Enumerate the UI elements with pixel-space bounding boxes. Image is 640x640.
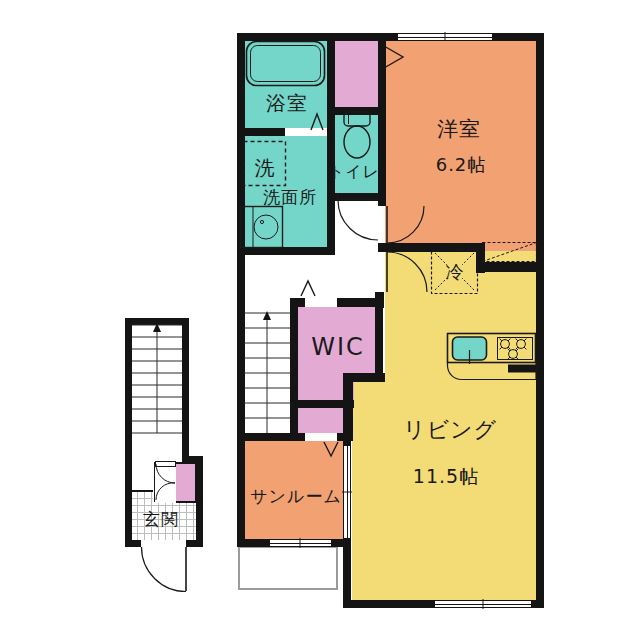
wall (125, 318, 132, 547)
room-closet-top (334, 40, 379, 108)
balcony (238, 546, 338, 590)
wall (125, 318, 189, 325)
wall (237, 539, 269, 547)
refrigerator-label: 冷 (446, 260, 465, 284)
wall (343, 600, 434, 608)
wic-label: WIC (311, 333, 365, 361)
room-closet-low (297, 407, 346, 434)
laundry-label: 洗 (255, 155, 276, 182)
living-size: 11.5帖 (413, 464, 479, 490)
wall (244, 247, 335, 255)
wall (290, 400, 354, 408)
western-room-label: 洋室 (437, 115, 481, 143)
wall (237, 33, 245, 546)
living-label: リビング (403, 415, 497, 445)
sunroom-window (269, 539, 332, 547)
entry-door-opening (141, 541, 186, 547)
floor-plan: 浴室 洗 洗面所 トイレ 洋室 6.2帖 冷 WIC リビング 11.5帖 サン… (0, 0, 640, 640)
entrance-label: 玄関 (143, 508, 179, 531)
stairs-internal (244, 311, 290, 433)
sunroom-door-opening (305, 433, 337, 441)
room-bathroom (244, 40, 328, 130)
wall (334, 107, 379, 115)
wall (244, 128, 285, 136)
wall (327, 40, 335, 253)
wall (244, 433, 305, 441)
stairs-external (132, 323, 182, 433)
wall (337, 433, 353, 441)
washroom-label: 洗面所 (263, 186, 317, 209)
bathroom-label: 浴室 (266, 90, 308, 117)
wall (290, 298, 298, 438)
shoe-cabinet (174, 462, 197, 503)
wic-door-opening (305, 298, 337, 307)
sunroom-label: サンルーム (250, 485, 342, 508)
toilet-label: トイレ (328, 162, 380, 183)
wall (532, 600, 544, 608)
wic-fold-door-marker (301, 281, 315, 296)
wall (290, 298, 305, 307)
wall (334, 193, 379, 201)
stairs-up-arrow (263, 311, 271, 320)
bath-door-opening (285, 128, 327, 136)
wall (375, 306, 383, 382)
entry-door-arc (142, 547, 187, 592)
sunroom-living-window (343, 445, 351, 539)
wall (345, 380, 353, 438)
wall (476, 262, 544, 272)
wall (378, 243, 482, 252)
wall (125, 540, 141, 547)
wall (343, 539, 351, 608)
wall (186, 540, 203, 547)
room-living-ext (352, 374, 388, 602)
western-room-window (397, 33, 493, 41)
western-room-size: 6.2帖 (436, 153, 487, 177)
wall (196, 456, 203, 547)
living-window (434, 600, 532, 608)
wall (237, 33, 397, 41)
wall (536, 33, 544, 607)
wall (182, 318, 189, 463)
